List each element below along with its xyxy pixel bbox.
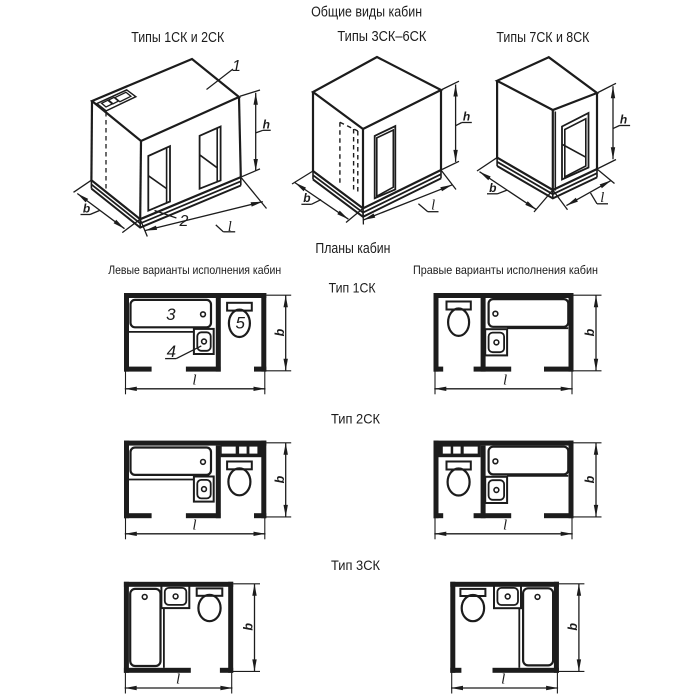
svg-text:Левые варианты исполнения каби: Левые варианты исполнения кабин bbox=[108, 263, 281, 277]
svg-text:b: b bbox=[583, 475, 597, 483]
svg-text:Типы 1СК и 2СК: Типы 1СК и 2СК bbox=[131, 30, 224, 46]
svg-text:b: b bbox=[566, 623, 580, 631]
svg-text:b: b bbox=[489, 181, 496, 195]
svg-text:3: 3 bbox=[166, 305, 176, 324]
svg-text:Типы 7СК и 8СК: Типы 7СК и 8СК bbox=[496, 30, 589, 46]
svg-text:l: l bbox=[600, 190, 604, 206]
svg-text:Тип 2СК: Тип 2СК bbox=[331, 410, 381, 426]
svg-text:l: l bbox=[192, 518, 196, 534]
svg-text:1: 1 bbox=[232, 58, 241, 75]
svg-text:l: l bbox=[503, 373, 507, 389]
svg-text:b: b bbox=[303, 191, 310, 205]
svg-text:h: h bbox=[263, 117, 270, 131]
svg-text:l: l bbox=[192, 373, 196, 389]
svg-text:h: h bbox=[620, 112, 627, 126]
svg-text:b: b bbox=[273, 328, 287, 336]
svg-text:Правые варианты исполнения каб: Правые варианты исполнения кабин bbox=[413, 263, 598, 277]
svg-text:b: b bbox=[273, 475, 287, 483]
svg-text:Планы кабин: Планы кабин bbox=[315, 241, 390, 257]
svg-text:5: 5 bbox=[235, 314, 245, 333]
svg-text:Тип 3СК: Тип 3СК bbox=[331, 557, 381, 573]
svg-text:2: 2 bbox=[179, 213, 189, 230]
svg-text:b: b bbox=[583, 328, 597, 336]
svg-text:b: b bbox=[83, 202, 90, 216]
svg-text:h: h bbox=[463, 109, 470, 123]
svg-text:Общие виды кабин: Общие виды кабин bbox=[311, 4, 422, 20]
svg-text:Типы 3СК–6СК: Типы 3СК–6СК bbox=[337, 29, 426, 45]
svg-text:l: l bbox=[431, 198, 435, 214]
svg-text:l: l bbox=[228, 219, 232, 235]
svg-text:l: l bbox=[503, 518, 507, 534]
svg-text:b: b bbox=[242, 623, 256, 631]
svg-text:l: l bbox=[501, 672, 505, 688]
svg-text:l: l bbox=[176, 672, 180, 688]
svg-text:Тип 1СК: Тип 1СК bbox=[329, 279, 377, 295]
